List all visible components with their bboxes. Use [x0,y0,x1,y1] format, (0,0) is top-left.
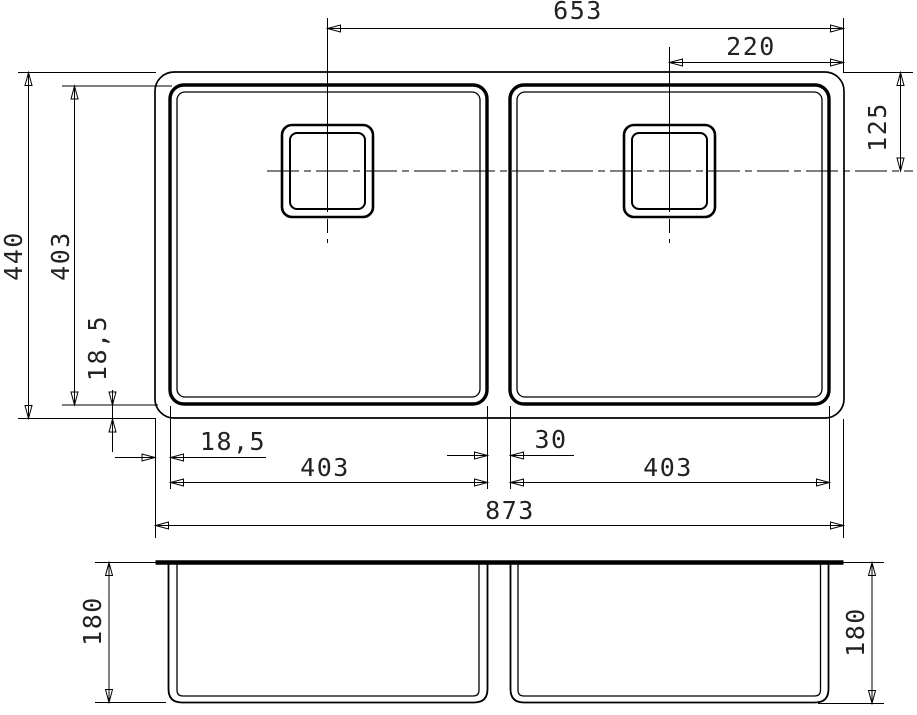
dim-label-403-bottom-left: 403 [300,453,350,482]
dim-label-18-5-bottom: 18,5 [200,427,266,456]
dim-403-left: 403 [46,86,75,405]
dim-220: 220 [670,32,844,63]
dim-label-180-right: 180 [841,607,870,657]
plan-view [155,72,844,418]
dim-label-30: 30 [534,425,567,454]
dim-label-403-left: 403 [46,231,75,281]
dim-18-5-left: 18,5 [83,315,113,452]
sink-outer-contour [155,72,844,418]
dim-label-873: 873 [485,496,535,525]
side-right-bowl-inner [518,565,821,697]
dim-label-653: 653 [553,0,603,25]
dim-label-18-5-left: 18,5 [83,315,112,381]
dim-label-403-bottom-right: 403 [643,453,693,482]
dim-873: 873 [156,496,844,526]
dim-653: 653 [328,0,844,29]
side-left-bowl-inner [177,565,479,697]
dimensions: 653 220 125 440 403 18,5 18,5 [0,0,901,704]
dim-403-bottom-right: 403 [511,453,830,483]
centerlines [267,18,913,246]
dim-125: 125 [863,73,901,172]
dim-label-220: 220 [726,32,776,61]
dim-440: 440 [0,73,29,419]
dim-label-125: 125 [863,102,892,152]
double-bowl-sink-drawing: 653 220 125 440 403 18,5 18,5 [0,0,917,715]
dim-label-180-left: 180 [78,596,107,646]
dim-180-left: 180 [78,563,109,703]
left-bowl-inner-radius-line [177,92,480,397]
dim-180-right: 180 [841,563,872,704]
extension-lines [18,18,913,704]
technical-drawing-canvas: 653 220 125 440 403 18,5 18,5 [0,0,917,715]
side-view [156,563,844,703]
side-right-bowl-outer [511,565,829,703]
side-left-bowl-outer [169,565,488,703]
dim-18-5-bottom: 18,5 [115,427,266,458]
dim-label-440: 440 [0,231,28,281]
